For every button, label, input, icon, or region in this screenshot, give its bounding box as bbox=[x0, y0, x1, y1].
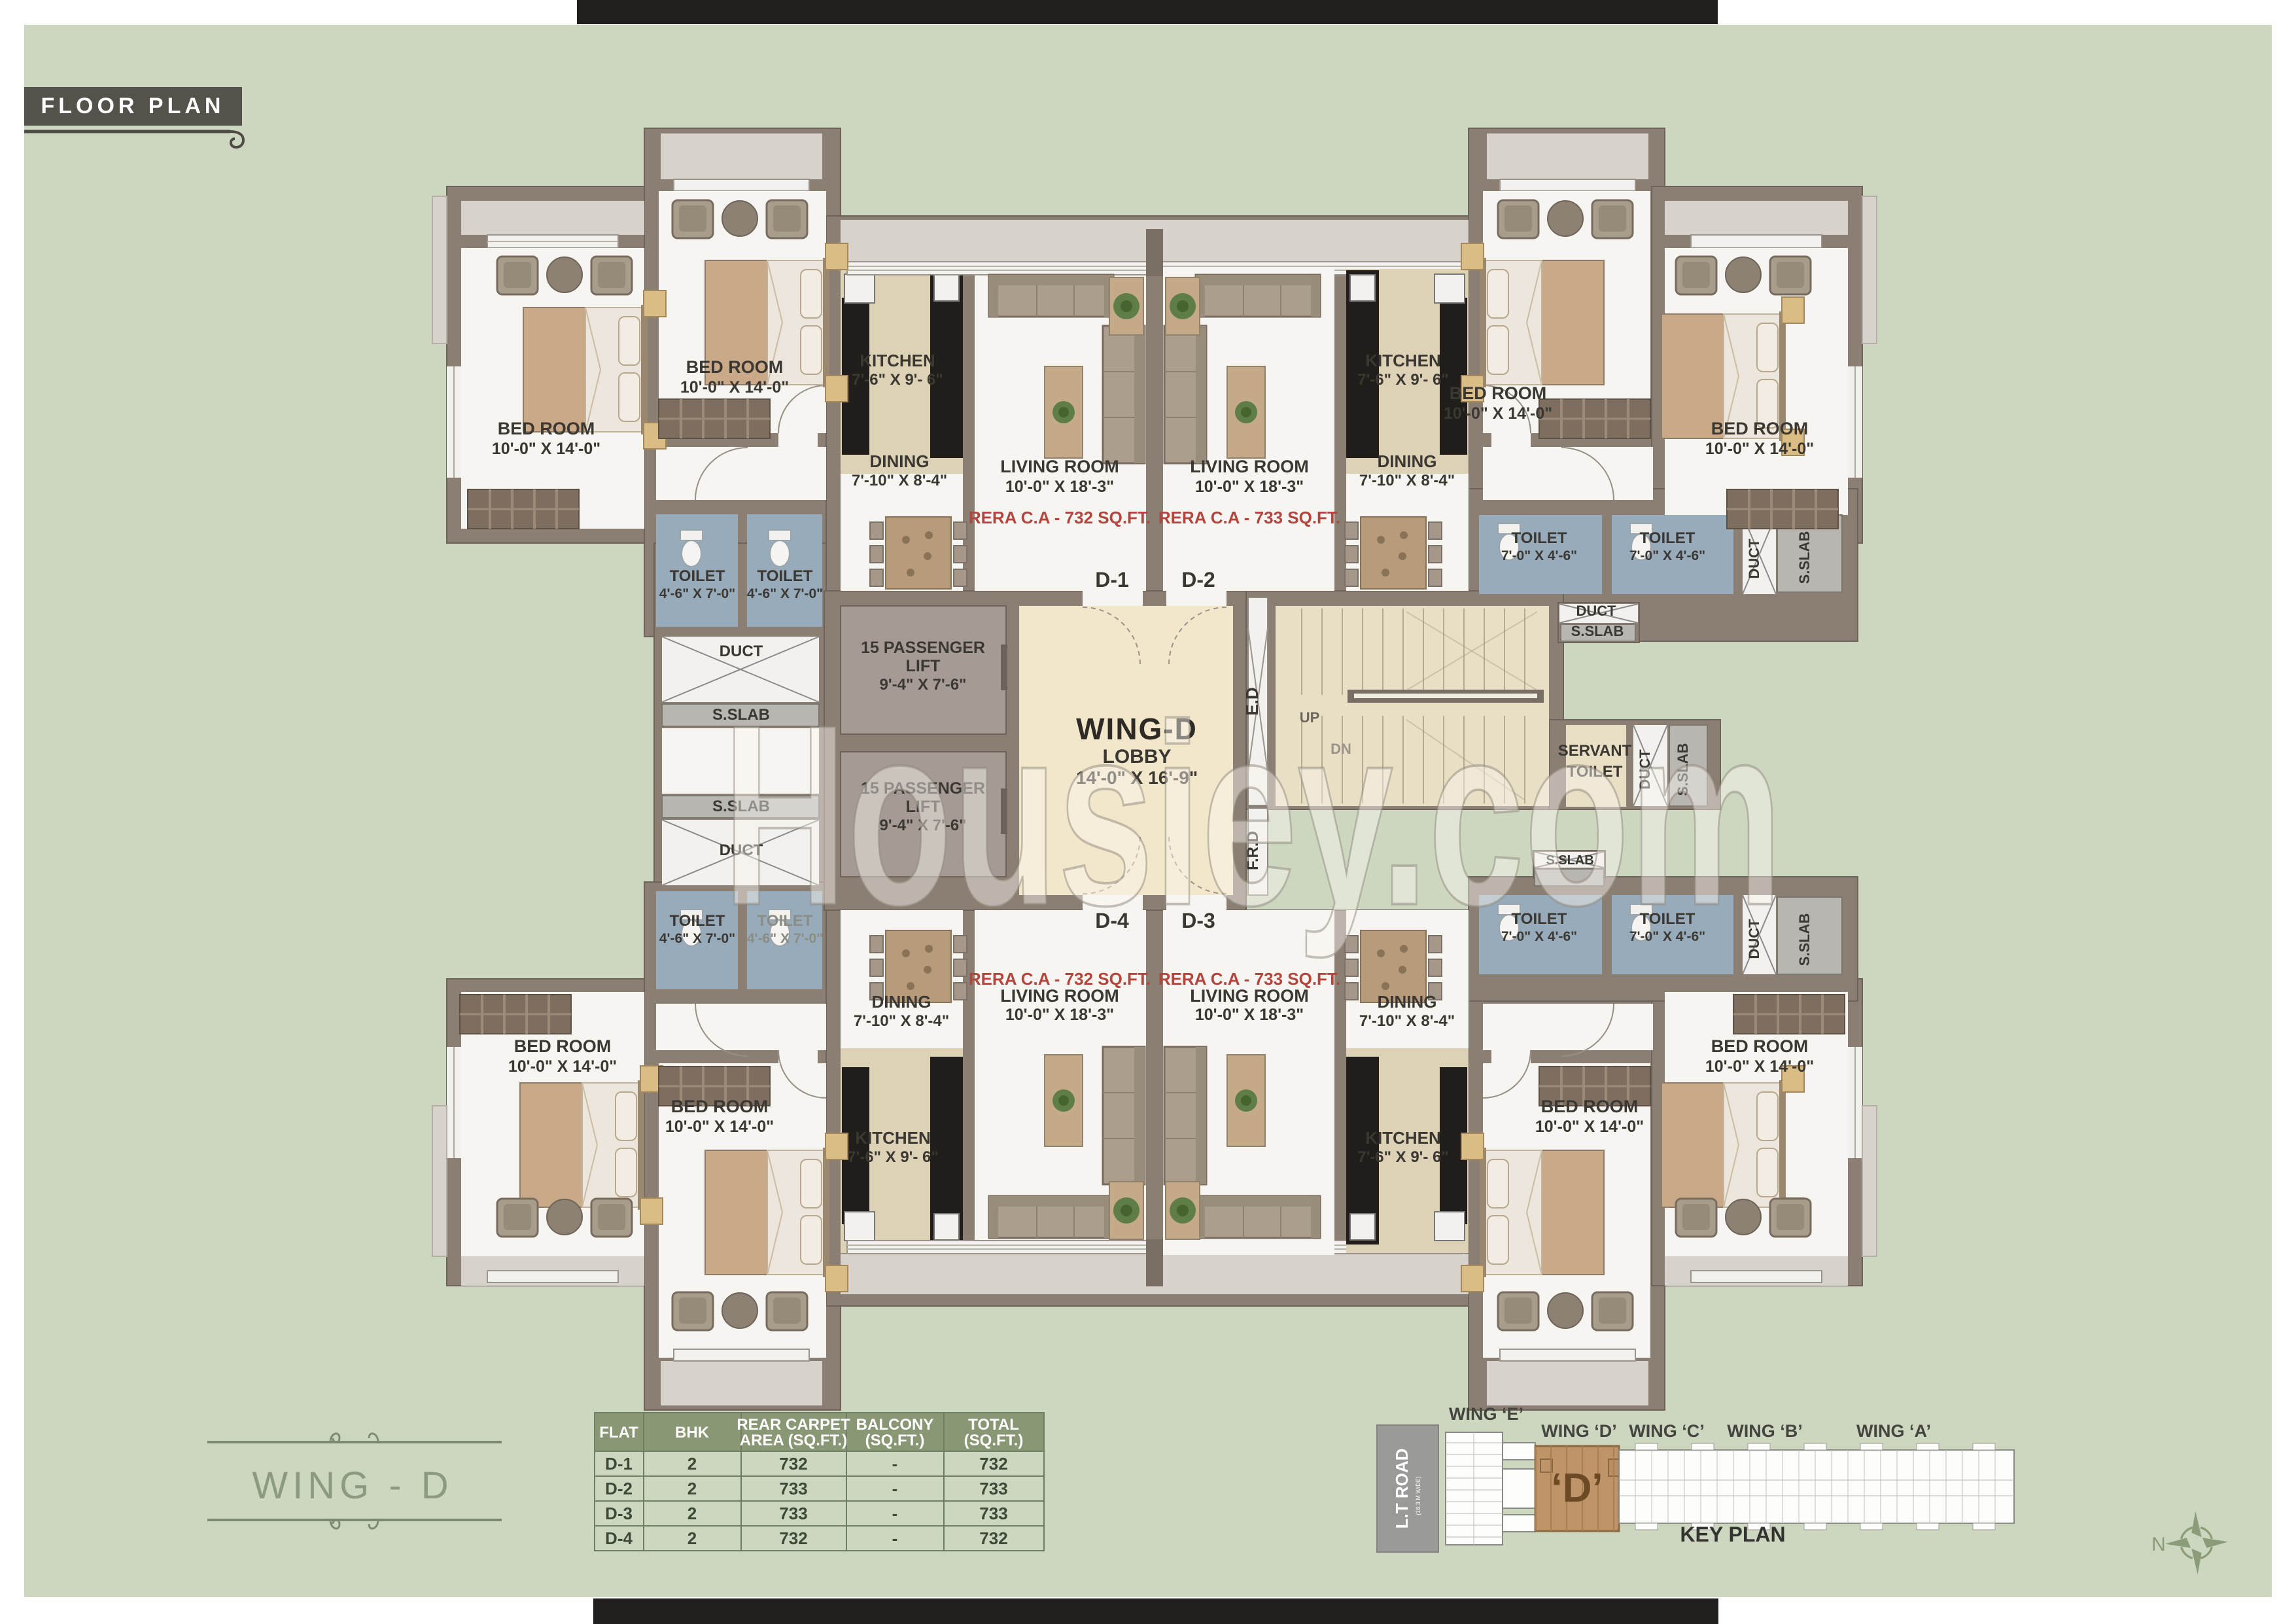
svg-text:2: 2 bbox=[687, 1528, 697, 1548]
svg-text:WING ‘A’: WING ‘A’ bbox=[1856, 1421, 1931, 1441]
svg-text:N: N bbox=[2151, 1534, 2166, 1555]
svg-text:DUCT: DUCT bbox=[720, 643, 763, 660]
svg-text:732: 732 bbox=[779, 1528, 807, 1548]
svg-text:10'-0" X 14'-0": 10'-0" X 14'-0" bbox=[680, 378, 789, 397]
svg-text:BED ROOM: BED ROOM bbox=[1450, 383, 1547, 403]
svg-text:732: 732 bbox=[979, 1528, 1007, 1548]
svg-text:BED ROOM: BED ROOM bbox=[1541, 1097, 1639, 1116]
svg-text:WING ‘D’: WING ‘D’ bbox=[1541, 1421, 1617, 1441]
svg-text:7'-6" X 9'- 6": 7'-6" X 9'- 6" bbox=[852, 371, 943, 389]
svg-text:TOILET: TOILET bbox=[1512, 529, 1567, 547]
svg-text:LIVING ROOM: LIVING ROOM bbox=[1000, 986, 1119, 1006]
svg-text:S.SLAB: S.SLAB bbox=[1571, 623, 1624, 639]
svg-text:-: - bbox=[892, 1479, 898, 1498]
svg-text:DINING: DINING bbox=[1378, 992, 1437, 1012]
svg-text:D-3: D-3 bbox=[605, 1504, 633, 1523]
svg-text:10'-0" X 14'-0": 10'-0" X 14'-0" bbox=[1535, 1118, 1644, 1136]
svg-text:-: - bbox=[892, 1528, 898, 1548]
svg-text:10'-0" X 14'-0": 10'-0" X 14'-0" bbox=[508, 1057, 617, 1076]
svg-text:FLAT: FLAT bbox=[599, 1424, 638, 1441]
svg-text:10'-0" X 18'-3": 10'-0" X 18'-3" bbox=[1195, 478, 1304, 496]
svg-text:-: - bbox=[892, 1504, 898, 1523]
svg-text:732: 732 bbox=[779, 1454, 807, 1474]
svg-text:KITCHEN: KITCHEN bbox=[860, 351, 935, 370]
svg-text:D-4: D-4 bbox=[605, 1528, 633, 1548]
svg-text:REAR CARPET: REAR CARPET bbox=[737, 1416, 850, 1434]
svg-text:10'-0" X 18'-3": 10'-0" X 18'-3" bbox=[1005, 478, 1114, 496]
svg-text:10'-0" X 14'-0": 10'-0" X 14'-0" bbox=[492, 440, 600, 458]
svg-text:WING ‘E’: WING ‘E’ bbox=[1449, 1404, 1523, 1424]
svg-text:KITCHEN: KITCHEN bbox=[855, 1128, 931, 1148]
svg-text:7'-10" X 8'-4": 7'-10" X 8'-4" bbox=[1359, 472, 1455, 489]
svg-text:7'-10" X 8'-4": 7'-10" X 8'-4" bbox=[1359, 1012, 1455, 1030]
svg-text:D-1: D-1 bbox=[1095, 568, 1129, 591]
svg-text:S.SLAB: S.SLAB bbox=[1796, 531, 1813, 584]
svg-text:KITCHEN: KITCHEN bbox=[1365, 1128, 1441, 1148]
svg-text:TOTAL: TOTAL bbox=[968, 1416, 1019, 1434]
svg-text:7'-6" X 9'- 6": 7'-6" X 9'- 6" bbox=[1357, 371, 1449, 389]
svg-text:4'-6" X 7'-0": 4'-6" X 7'-0" bbox=[659, 586, 735, 601]
svg-text:(18.3 M WIDE): (18.3 M WIDE) bbox=[1415, 1476, 1421, 1515]
svg-text:BED ROOM: BED ROOM bbox=[498, 419, 595, 438]
svg-text:2: 2 bbox=[687, 1454, 697, 1474]
svg-text:S.SLAB: S.SLAB bbox=[1796, 913, 1813, 966]
svg-text:RERA C.A - 732 SQ.FT.: RERA C.A - 732 SQ.FT. bbox=[969, 508, 1151, 527]
svg-text:7'-6" X 9'- 6": 7'-6" X 9'- 6" bbox=[1357, 1148, 1449, 1166]
svg-text:(SQ.FT.): (SQ.FT.) bbox=[964, 1432, 1024, 1449]
svg-text:732: 732 bbox=[979, 1454, 1007, 1474]
svg-text:4'-6" X 7'-0": 4'-6" X 7'-0" bbox=[747, 586, 823, 601]
svg-text:DINING: DINING bbox=[1378, 451, 1437, 471]
svg-text:AREA (SQ.FT.): AREA (SQ.FT.) bbox=[740, 1432, 847, 1449]
svg-text:TOILET: TOILET bbox=[670, 912, 725, 930]
svg-text:733: 733 bbox=[979, 1479, 1007, 1498]
svg-text:10'-0" X 14'-0": 10'-0" X 14'-0" bbox=[1444, 404, 1552, 423]
svg-text:DUCT: DUCT bbox=[1576, 603, 1616, 619]
svg-text:WING - D: WING - D bbox=[252, 1464, 453, 1507]
svg-text:BED ROOM: BED ROOM bbox=[1711, 1036, 1809, 1056]
svg-text:10'-0" X 18'-3": 10'-0" X 18'-3" bbox=[1005, 1006, 1114, 1024]
svg-text:‘D’: ‘D’ bbox=[1551, 1466, 1603, 1511]
svg-text:10'-0" X 14'-0": 10'-0" X 14'-0" bbox=[665, 1118, 774, 1136]
svg-text:WING ‘B’: WING ‘B’ bbox=[1727, 1421, 1803, 1441]
svg-text:BED ROOM: BED ROOM bbox=[1711, 419, 1809, 438]
svg-text:(SQ.FT.): (SQ.FT.) bbox=[865, 1432, 925, 1449]
svg-text:LIVING ROOM: LIVING ROOM bbox=[1000, 457, 1119, 476]
svg-text:7'-0" X 4'-6": 7'-0" X 4'-6" bbox=[1629, 548, 1705, 563]
svg-text:D-2: D-2 bbox=[1181, 568, 1215, 591]
svg-text:RERA C.A - 733 SQ.FT.: RERA C.A - 733 SQ.FT. bbox=[1158, 969, 1340, 989]
svg-text:RERA C.A - 732 SQ.FT.: RERA C.A - 732 SQ.FT. bbox=[969, 969, 1151, 989]
svg-text:Housiey.com: Housiey.com bbox=[723, 671, 1783, 961]
svg-text:10'-0" X 14'-0": 10'-0" X 14'-0" bbox=[1705, 1057, 1814, 1076]
svg-text:BHK: BHK bbox=[675, 1424, 710, 1441]
svg-text:DINING: DINING bbox=[870, 451, 930, 471]
svg-text:10'-0" X 14'-0": 10'-0" X 14'-0" bbox=[1705, 440, 1814, 458]
svg-text:733: 733 bbox=[979, 1504, 1007, 1523]
svg-text:D-1: D-1 bbox=[605, 1454, 633, 1474]
svg-text:BED ROOM: BED ROOM bbox=[514, 1036, 612, 1056]
svg-text:-: - bbox=[892, 1454, 898, 1474]
svg-text:D-2: D-2 bbox=[605, 1479, 633, 1498]
svg-text:DINING: DINING bbox=[872, 992, 931, 1012]
svg-text:TOILET: TOILET bbox=[757, 567, 813, 585]
svg-text:L.T ROAD: L.T ROAD bbox=[1392, 1449, 1412, 1529]
svg-text:2: 2 bbox=[687, 1504, 697, 1523]
svg-text:BED ROOM: BED ROOM bbox=[686, 357, 784, 377]
svg-text:BED ROOM: BED ROOM bbox=[671, 1097, 769, 1116]
svg-text:10'-0" X 18'-3": 10'-0" X 18'-3" bbox=[1195, 1006, 1304, 1024]
svg-text:7'-10" X 8'-4": 7'-10" X 8'-4" bbox=[854, 1012, 949, 1030]
svg-text:KEY PLAN: KEY PLAN bbox=[1680, 1523, 1785, 1546]
svg-text:733: 733 bbox=[779, 1504, 807, 1523]
svg-text:7'-0" X 4'-6": 7'-0" X 4'-6" bbox=[1501, 548, 1577, 563]
svg-text:WING ‘C’: WING ‘C’ bbox=[1629, 1421, 1705, 1441]
svg-text:KITCHEN: KITCHEN bbox=[1365, 351, 1441, 370]
svg-text:TOILET: TOILET bbox=[670, 567, 725, 585]
svg-text:2: 2 bbox=[687, 1479, 697, 1498]
svg-text:TOILET: TOILET bbox=[1640, 529, 1696, 547]
svg-text:LIVING ROOM: LIVING ROOM bbox=[1190, 457, 1309, 476]
svg-text:15 PASSENGER: 15 PASSENGER bbox=[861, 639, 985, 657]
svg-text:LIVING ROOM: LIVING ROOM bbox=[1190, 986, 1309, 1006]
svg-text:7'-6" X 9'- 6": 7'-6" X 9'- 6" bbox=[847, 1148, 939, 1166]
svg-text:733: 733 bbox=[779, 1479, 807, 1498]
svg-text:RERA C.A - 733 SQ.FT.: RERA C.A - 733 SQ.FT. bbox=[1158, 508, 1340, 527]
svg-text:DUCT: DUCT bbox=[1746, 538, 1762, 579]
svg-text:FLOOR PLAN: FLOOR PLAN bbox=[41, 94, 225, 118]
svg-text:BALCONY: BALCONY bbox=[856, 1416, 934, 1434]
svg-text:7'-10" X 8'-4": 7'-10" X 8'-4" bbox=[852, 472, 947, 489]
